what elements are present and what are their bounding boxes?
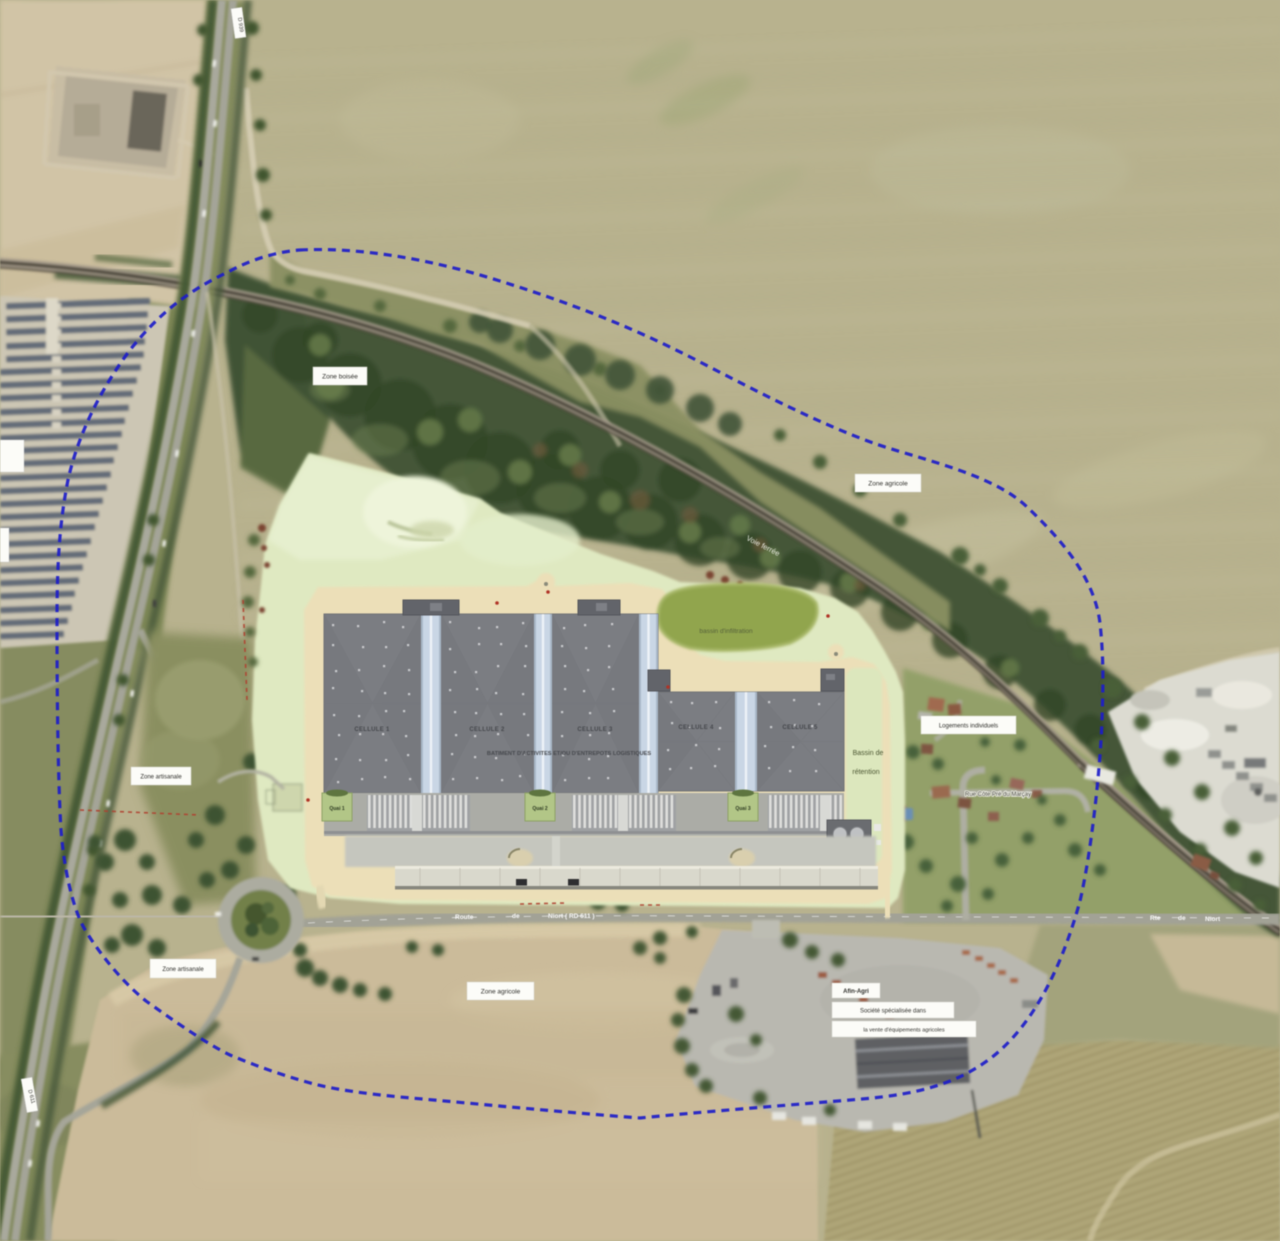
svg-text:Zone artisanale: Zone artisanale <box>140 774 182 780</box>
svg-text:Quai 2: Quai 2 <box>532 806 548 812</box>
svg-text:Société spécialisée dans: Société spécialisée dans <box>860 1008 926 1014</box>
svg-text:Niort: Niort <box>1205 916 1221 923</box>
svg-text:Quai 3: Quai 3 <box>735 806 751 812</box>
svg-text:CELLULE 2: CELLULE 2 <box>469 727 505 733</box>
svg-text:la vente d'équipements agricol: la vente d'équipements agricoles <box>863 1027 944 1033</box>
svg-text:Zone agricole: Zone agricole <box>481 988 521 995</box>
svg-text:Afin-Agri: Afin-Agri <box>843 989 869 995</box>
svg-text:BATIMENT D'ACTIVITES ET/OU D'E: BATIMENT D'ACTIVITES ET/OU D'ENTREPOTS L… <box>487 751 651 757</box>
svg-text:Niort ( RD 611 ): Niort ( RD 611 ) <box>548 913 595 920</box>
svg-text:bassin d'infiltration: bassin d'infiltration <box>699 628 753 635</box>
svg-text:rétention: rétention <box>852 769 879 776</box>
svg-text:de: de <box>512 913 520 920</box>
svg-text:CELLULE 5: CELLULE 5 <box>782 725 818 731</box>
svg-text:Rte: Rte <box>1150 915 1161 922</box>
svg-text:Quai 1: Quai 1 <box>329 806 345 812</box>
svg-text:CELLULE 1: CELLULE 1 <box>354 727 390 733</box>
svg-text:CELLULE 4: CELLULE 4 <box>678 725 714 731</box>
svg-text:Zone boisée: Zone boisée <box>322 373 358 380</box>
svg-text:Zone agricole: Zone agricole <box>868 480 908 487</box>
svg-text:Logements individuels: Logements individuels <box>939 723 998 729</box>
svg-text:Bassin de: Bassin de <box>853 750 884 757</box>
svg-text:CELLULE 3: CELLULE 3 <box>577 727 613 733</box>
svg-text:Rue Côte Pré du Marçay: Rue Côte Pré du Marçay <box>965 792 1031 798</box>
svg-text:de: de <box>1178 915 1186 922</box>
svg-text:Zone artisanale: Zone artisanale <box>162 967 204 973</box>
svg-text:Route: Route <box>455 914 474 921</box>
